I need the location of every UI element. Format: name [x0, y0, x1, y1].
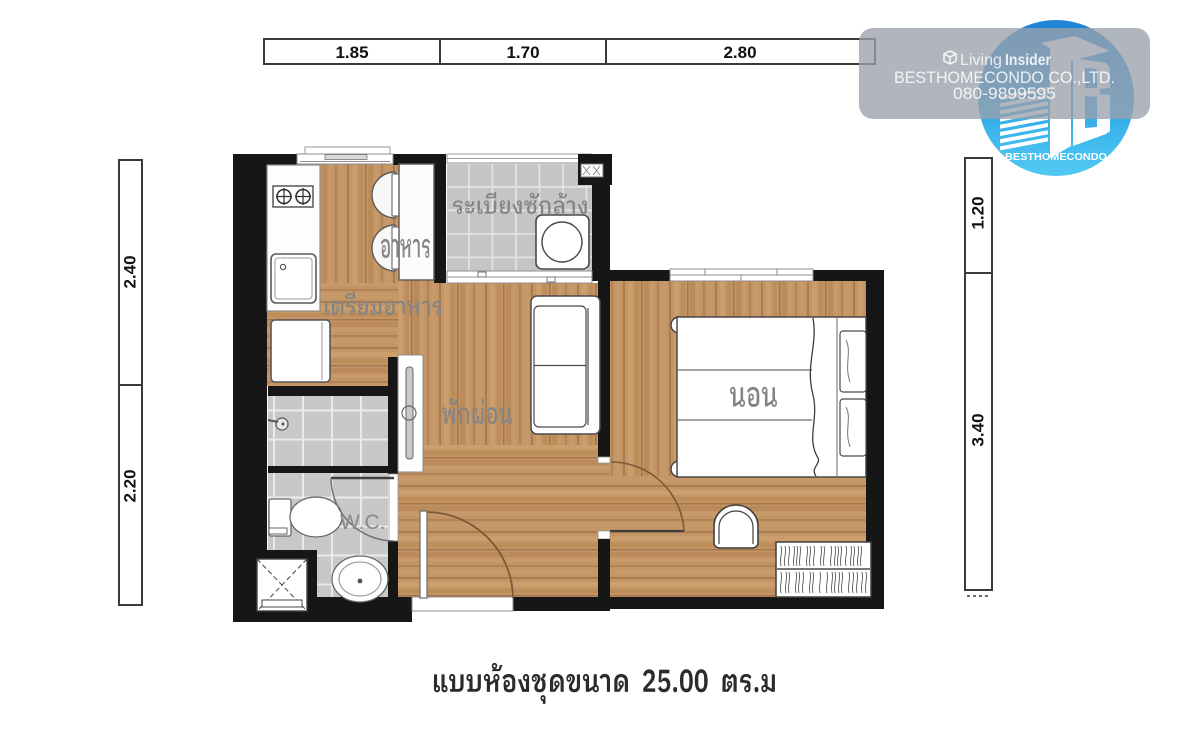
svg-text:1.20: 1.20 [969, 196, 988, 229]
svg-text:1.70: 1.70 [506, 43, 539, 62]
svg-text:W.C.: W.C. [340, 511, 386, 534]
svg-text:2.40: 2.40 [121, 255, 140, 288]
svg-text:2.80: 2.80 [723, 43, 756, 62]
svg-text:080-9899595: 080-9899595 [953, 85, 1056, 103]
svg-text:BESTHOMECONDO: BESTHOMECONDO [1005, 151, 1107, 163]
svg-text:3.40: 3.40 [969, 413, 988, 446]
svg-text:Living: Living [960, 52, 1002, 69]
svg-text:2.20: 2.20 [121, 469, 140, 502]
svg-text:1.85: 1.85 [335, 43, 368, 62]
svg-text:Insider: Insider [1005, 52, 1051, 69]
